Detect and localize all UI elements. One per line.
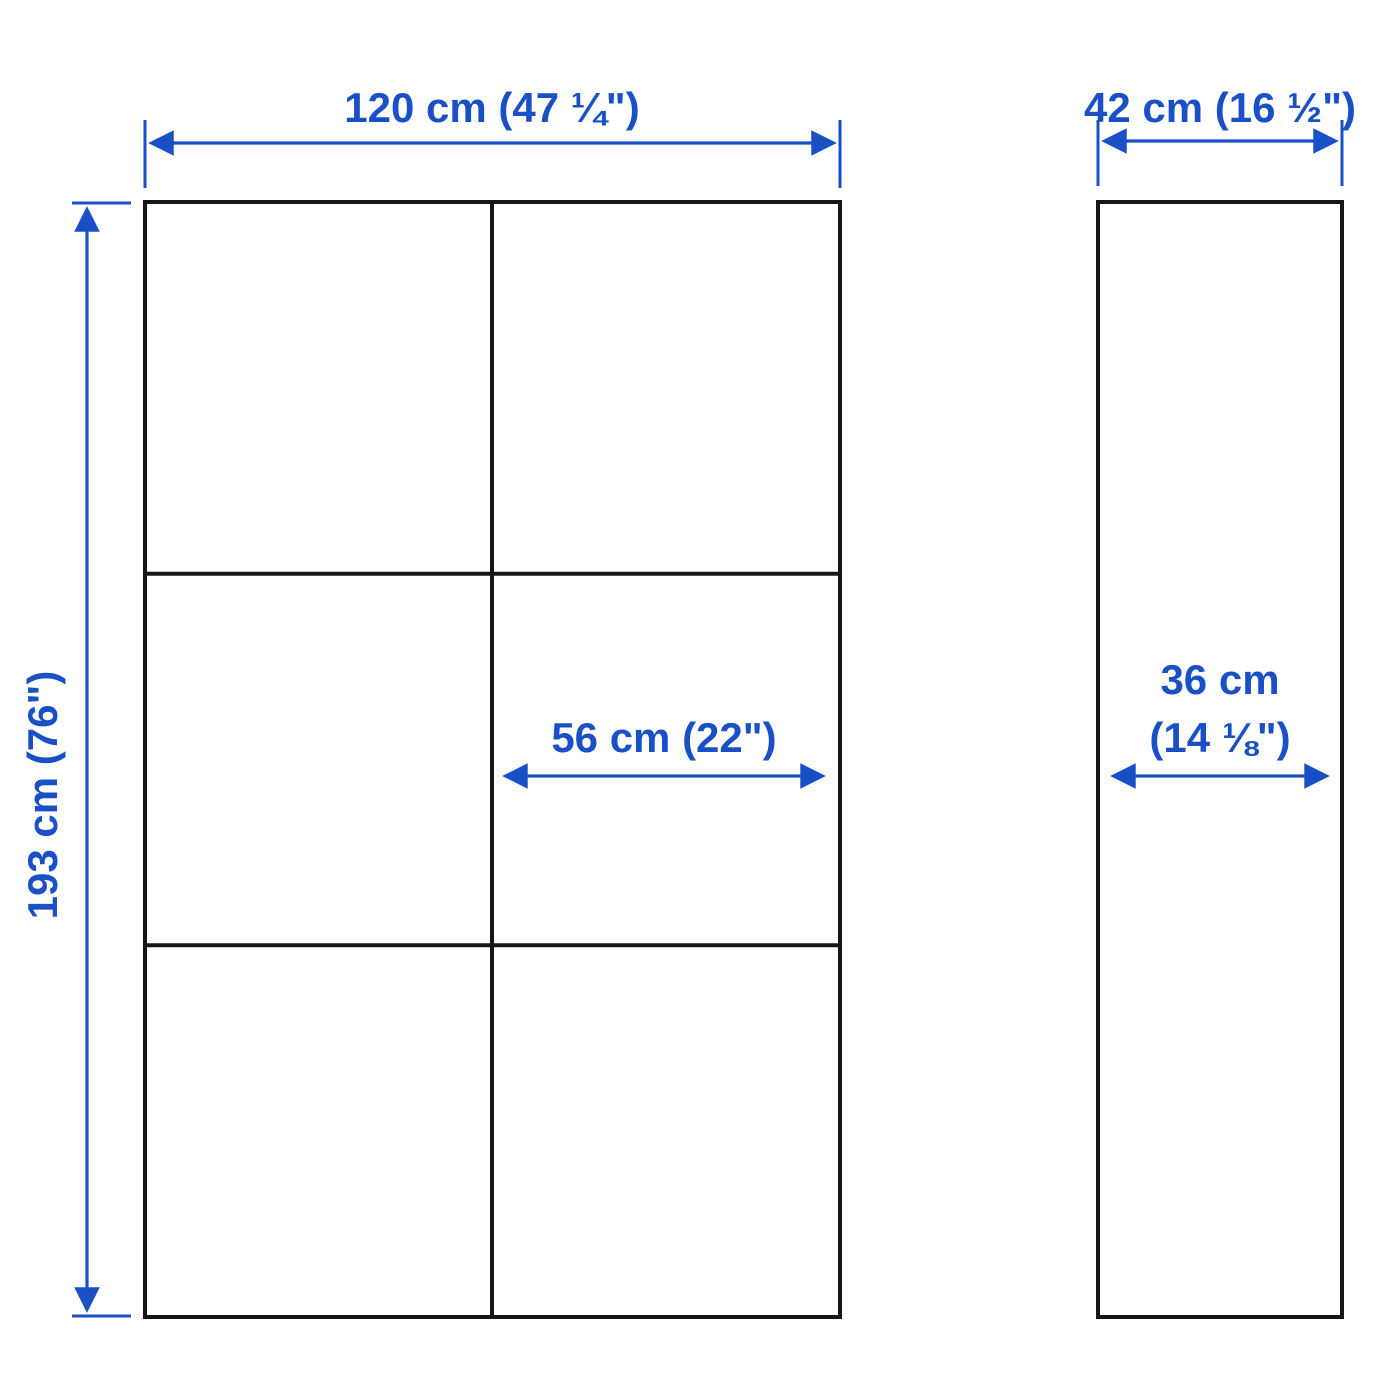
- dim-overall-height: 193 cm (76"): [19, 203, 131, 1316]
- dim-inner-depth: 36 cm (14 ⅛"): [1114, 656, 1326, 776]
- dimension-diagram: 120 cm (47 ¼") 42 cm (16 ½") 193 cm (76"…: [0, 0, 1400, 1400]
- dim-overall-width: 120 cm (47 ¼"): [145, 84, 840, 188]
- dim-section-width: 56 cm (22"): [506, 714, 822, 776]
- dimension-diagram-page: 120 cm (47 ¼") 42 cm (16 ½") 193 cm (76"…: [0, 0, 1400, 1400]
- inner-depth-label-line2: (14 ⅛"): [1149, 714, 1290, 761]
- overall-depth-label: 42 cm (16 ½"): [1084, 84, 1356, 131]
- dim-overall-depth: 42 cm (16 ½"): [1084, 84, 1356, 186]
- overall-height-label: 193 cm (76"): [19, 671, 66, 920]
- overall-width-label: 120 cm (47 ¼"): [344, 84, 639, 131]
- section-width-label: 56 cm (22"): [551, 714, 776, 761]
- inner-depth-label-line1: 36 cm: [1160, 656, 1279, 703]
